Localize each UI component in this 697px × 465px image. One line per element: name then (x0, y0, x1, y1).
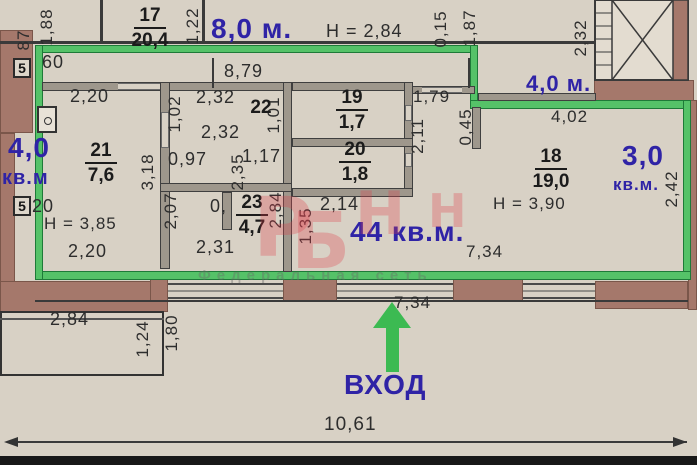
facade-pier (453, 279, 523, 301)
dim-label-vertical: 2,32 (571, 4, 591, 72)
dim-tick (468, 58, 470, 88)
window (523, 283, 595, 299)
lintel-marker: 5 (13, 58, 31, 78)
room-number: 18 (535, 147, 566, 170)
dim-label: 7,34 (394, 293, 431, 313)
room-label: 217,6 (56, 141, 146, 186)
entrance-arrow-shaft (386, 326, 399, 372)
dim-label: Н = 3,85 (44, 214, 117, 234)
dim-label: 2,20 (70, 86, 109, 107)
dim-label-vertical: 0,15 (431, 0, 451, 63)
lintel-marker: 5 (13, 196, 31, 216)
photo-edge (0, 456, 697, 465)
dim-label: 2,84 (50, 309, 89, 330)
stairwell-icon (594, 0, 690, 82)
room-area: 1,7 (307, 111, 397, 133)
watermark-letter: Н (355, 184, 405, 244)
room17-wall-left (100, 0, 103, 42)
floor-plan: Федеральная сеть 602,208,792,322,320,971… (0, 0, 697, 465)
dim-arrow-left (4, 437, 18, 447)
area-label: 8,0 м. (211, 13, 292, 45)
watermark-letter: Б (291, 203, 350, 281)
window (168, 283, 283, 299)
dim-label: Н = 3,90 (493, 194, 566, 214)
room-number: 22 (245, 98, 276, 119)
door-opening (118, 83, 160, 90)
dim-label: 10,61 (324, 414, 377, 436)
dim-label: 0,97 (168, 149, 207, 170)
unit-boundary-top (35, 45, 478, 53)
dim-label-vertical: 1,80 (162, 299, 182, 367)
dim-label-vertical: 1,88 (37, 0, 57, 61)
room-area: 7,6 (56, 164, 146, 186)
facade-bottom-line (35, 300, 688, 302)
dim-label-vertical: 2,42 (662, 155, 682, 223)
room-label: 1819,0 (506, 147, 596, 192)
overall-dim-line (8, 441, 687, 443)
dim-label-vertical: 1,02 (165, 80, 185, 148)
area-label: кв.м. (613, 175, 659, 195)
room-label: 191,7 (307, 88, 397, 133)
area-label: 3,0 (622, 140, 664, 172)
area-label: ВХОД (344, 369, 426, 401)
room-number: 21 (85, 141, 116, 164)
dim-label: 8,79 (224, 61, 263, 82)
watermark-letter: Н (428, 188, 467, 234)
dim-label-vertical: 0,45 (456, 93, 476, 161)
room-number: 17 (134, 6, 165, 29)
dim-label-vertical: 2,11 (408, 102, 428, 170)
area-label: 4,0 м. (526, 71, 591, 97)
dim-label: Н = 2,84 (326, 21, 403, 42)
duct-symbol (37, 106, 57, 133)
dim-label-vertical: 2,07 (161, 177, 181, 245)
room-number: 19 (336, 88, 367, 111)
dim-label: 4,02 (551, 107, 588, 127)
room-label: 1720,4 (105, 6, 195, 51)
area-label: кв.м (2, 167, 49, 190)
dim-label-vertical: 1,24 (133, 305, 153, 373)
room-area: 20,4 (105, 29, 195, 51)
circle-icon (44, 117, 52, 125)
dim-label: 20 (32, 196, 54, 217)
room-number: 20 (339, 140, 370, 163)
dim-label: 2,20 (68, 241, 107, 262)
dim-tick (212, 58, 214, 88)
dim-label-vertical: 1,87 (460, 0, 480, 62)
room-area: 19,0 (506, 170, 596, 192)
unit-boundary-right (683, 100, 691, 280)
dim-label: 7,34 (466, 242, 503, 262)
area-label: 4,0 (8, 132, 50, 164)
dim-label: 2,31 (196, 237, 235, 258)
dim-arrow-right (673, 437, 687, 447)
facade-pier (150, 279, 168, 301)
room-label: 22 (216, 98, 306, 119)
exterior-wall-bottom-right (595, 281, 688, 309)
building-top-wall (0, 41, 596, 44)
